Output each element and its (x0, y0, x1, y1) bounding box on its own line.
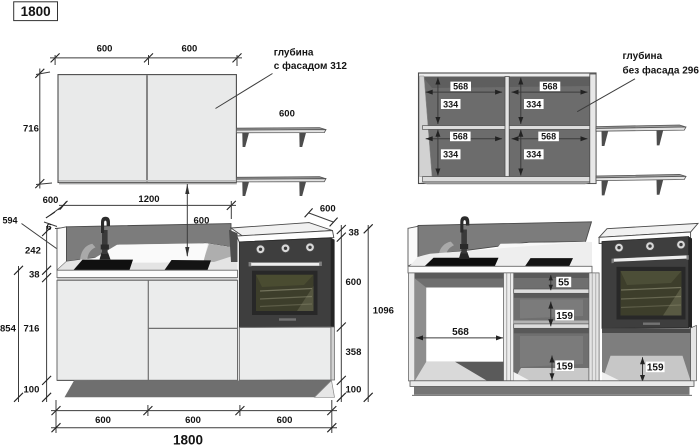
svg-text:159: 159 (556, 311, 573, 322)
svg-text:334: 334 (526, 99, 541, 109)
svg-text:600: 600 (277, 415, 293, 426)
svg-text:600: 600 (346, 277, 362, 288)
svg-text:1096: 1096 (373, 306, 394, 317)
svg-text:594: 594 (3, 216, 18, 226)
svg-text:334: 334 (443, 99, 458, 109)
svg-text:38: 38 (349, 228, 360, 239)
svg-text:1800: 1800 (173, 433, 203, 446)
svg-text:55: 55 (558, 278, 570, 289)
svg-text:без фасада 296: без фасада 296 (623, 64, 700, 76)
svg-text:568: 568 (452, 327, 469, 338)
svg-text:600: 600 (43, 195, 59, 206)
svg-text:600: 600 (320, 204, 336, 215)
svg-text:568: 568 (453, 132, 468, 142)
svg-text:334: 334 (443, 150, 458, 160)
svg-text:568: 568 (542, 82, 557, 92)
svg-text:1800: 1800 (21, 4, 51, 19)
svg-text:100: 100 (346, 385, 362, 396)
svg-text:159: 159 (647, 363, 664, 374)
svg-text:600: 600 (97, 44, 113, 55)
svg-text:242: 242 (25, 246, 41, 257)
svg-text:600: 600 (194, 216, 210, 227)
svg-text:600: 600 (95, 415, 111, 426)
svg-text:глубина: глубина (274, 46, 314, 58)
svg-text:716: 716 (23, 124, 39, 135)
svg-text:568: 568 (541, 132, 556, 142)
svg-text:1200: 1200 (138, 194, 159, 205)
svg-text:358: 358 (346, 347, 362, 358)
svg-text:38: 38 (29, 269, 40, 280)
svg-text:глубина: глубина (623, 50, 663, 62)
svg-text:159: 159 (556, 362, 573, 373)
svg-text:600: 600 (181, 44, 197, 55)
svg-text:с фасадом 312: с фасадом 312 (274, 60, 348, 72)
svg-text:568: 568 (453, 82, 468, 92)
svg-text:854: 854 (0, 324, 17, 335)
svg-text:600: 600 (279, 109, 295, 120)
svg-text:716: 716 (24, 324, 40, 335)
svg-text:334: 334 (526, 150, 541, 160)
svg-text:100: 100 (24, 385, 40, 396)
svg-text:600: 600 (185, 415, 201, 426)
